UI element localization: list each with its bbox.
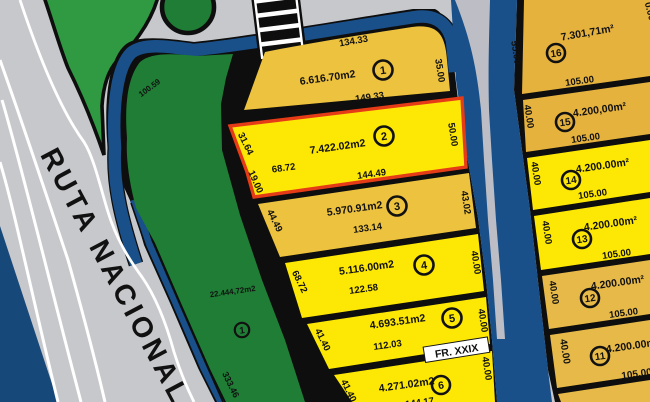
- svg-text:14: 14: [565, 175, 578, 188]
- svg-text:12: 12: [584, 293, 597, 306]
- svg-text:16: 16: [550, 48, 563, 61]
- svg-text:13: 13: [576, 234, 589, 247]
- svg-text:11: 11: [594, 351, 606, 363]
- svg-text:15: 15: [559, 117, 572, 130]
